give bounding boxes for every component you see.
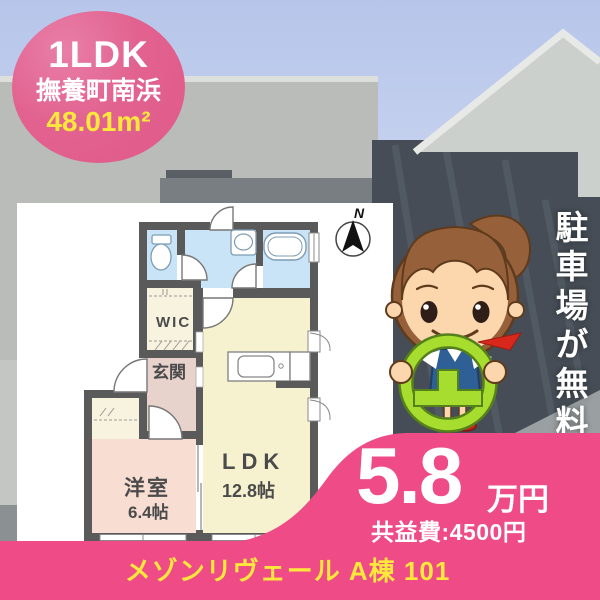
rent-amount: 5.8 <box>356 436 461 516</box>
property-name: メゾンリヴェール A棟 101 <box>0 551 575 588</box>
common-fee: 共益費:4500円 <box>371 513 526 547</box>
location-text: 撫養町南浜 <box>12 77 185 106</box>
layout-type: 1LDK <box>12 36 185 75</box>
info-badge: 1LDK 撫養町南浜 48.01m² <box>12 11 185 163</box>
area-text: 48.01m² <box>12 107 185 138</box>
listing-flyer: N WIC 玄関 洋室 6.4帖 LDK 12.8帖 <box>0 0 600 600</box>
